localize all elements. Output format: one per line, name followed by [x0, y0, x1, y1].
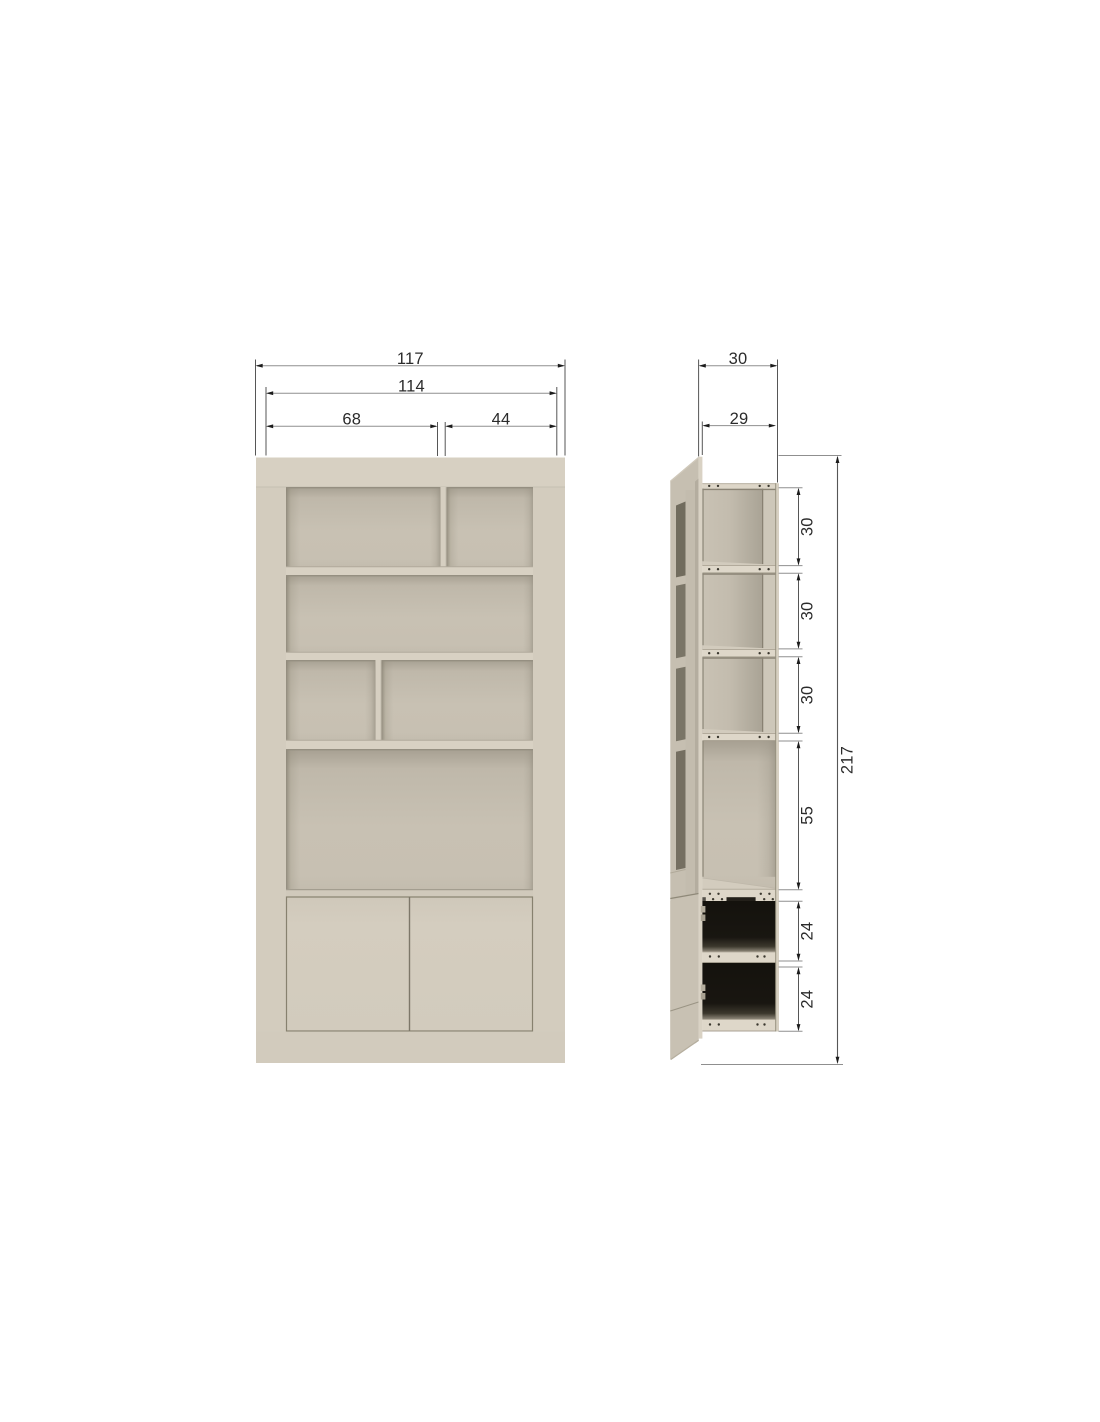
svg-text:24: 24: [798, 990, 816, 1009]
svg-text:114: 114: [398, 377, 425, 395]
svg-text:68: 68: [342, 410, 361, 428]
svg-text:29: 29: [730, 410, 749, 428]
svg-text:30: 30: [798, 517, 816, 536]
svg-text:117: 117: [397, 350, 424, 368]
svg-text:44: 44: [492, 410, 511, 428]
svg-text:24: 24: [798, 922, 816, 941]
svg-text:30: 30: [798, 602, 816, 621]
svg-text:217: 217: [839, 746, 857, 774]
svg-text:30: 30: [798, 686, 816, 705]
svg-text:30: 30: [729, 350, 748, 368]
svg-text:55: 55: [798, 806, 816, 825]
